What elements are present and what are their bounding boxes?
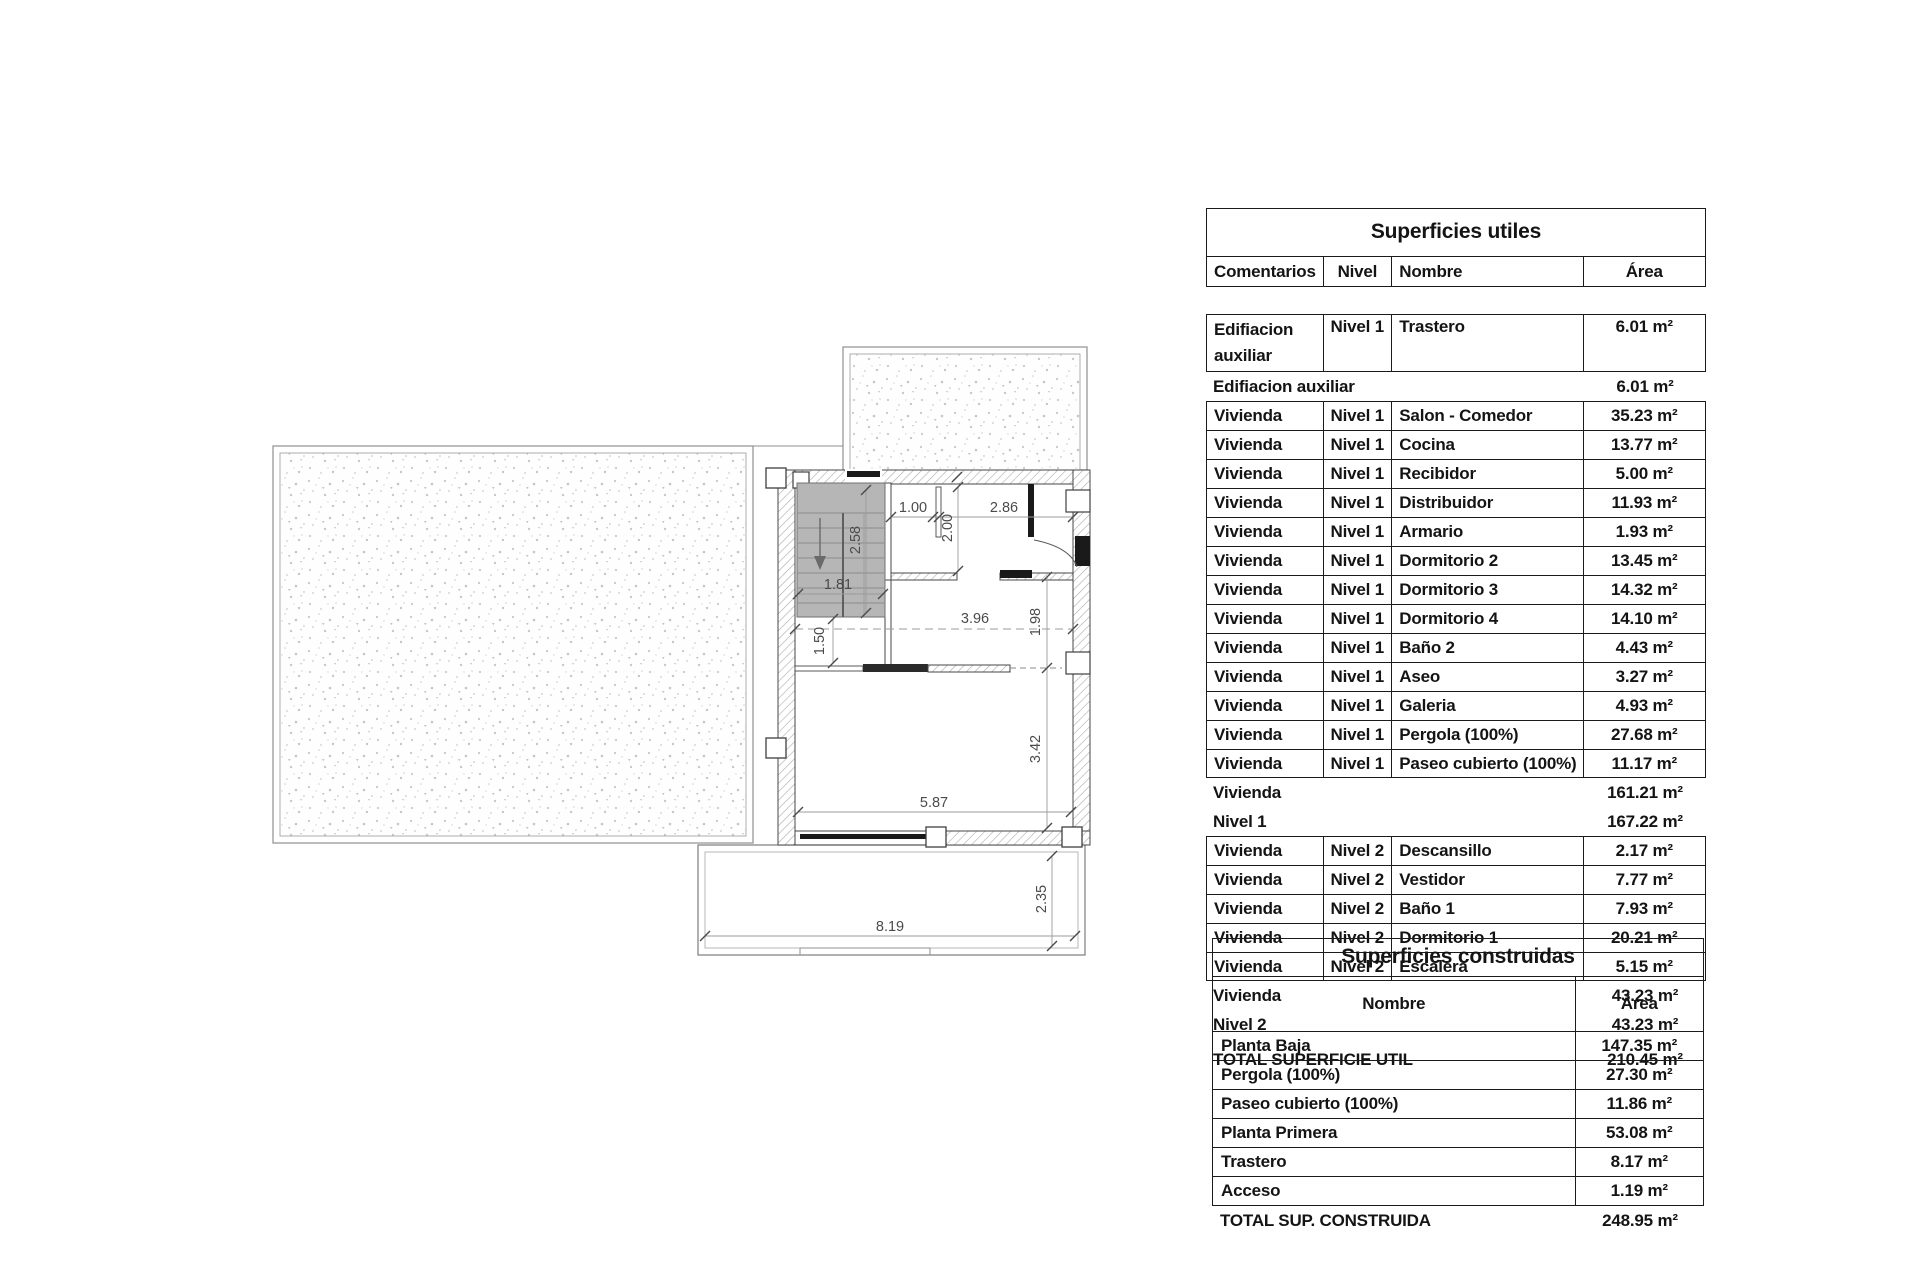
table-row: Edifiacion auxiliarNivel 1Trastero6.01 m… (1206, 314, 1706, 372)
table-row: ViviendaNivel 1Dormitorio 213.45 m² (1206, 546, 1706, 575)
table-title: Superficies utiles (1206, 208, 1706, 257)
dimension-label: 3.96 (961, 611, 989, 627)
table-row: Planta Primera53.08 m² (1212, 1119, 1704, 1148)
table-cell: 4.43 m² (1584, 634, 1705, 662)
table-cell: Dormitorio 2 (1392, 547, 1583, 575)
table-cell: Nivel 1 (1324, 315, 1393, 371)
table-cell: 5.00 m² (1584, 460, 1705, 488)
row-area: 248.95 m² (1576, 1206, 1704, 1236)
total-row: TOTAL SUP. CONSTRUIDA 248.95 m² (1212, 1206, 1704, 1236)
table-cell: Vivienda (1207, 721, 1324, 749)
table-cell: 147.35 m² (1576, 1032, 1703, 1060)
subtotal-row: Edifiacion auxiliar6.01 m² (1206, 372, 1706, 401)
table-row: ViviendaNivel 1Dormitorio 314.32 m² (1206, 575, 1706, 604)
table-cell: Vivienda (1207, 576, 1324, 604)
table-cell: Nivel 1 (1324, 576, 1393, 604)
table-cell: Baño 2 (1392, 634, 1583, 662)
door-threshold (847, 471, 880, 477)
roof-terrace-area (843, 347, 1087, 470)
table-cell: 3.27 m² (1584, 663, 1705, 691)
table-cell: Vivienda (1207, 750, 1324, 777)
table-header: Nombre Área (1212, 977, 1704, 1032)
dimension-label: 2.86 (990, 500, 1018, 516)
table-cell: Vivienda (1207, 460, 1324, 488)
table-row: Pergola (100%)27.30 m² (1212, 1061, 1704, 1090)
porch-area (698, 845, 1085, 955)
table-cell: Planta Baja (1213, 1032, 1576, 1060)
row-area: 167.22 m² (1584, 807, 1706, 836)
table-row: Trastero8.17 m² (1212, 1148, 1704, 1177)
table-cell: Nivel 1 (1324, 518, 1393, 546)
table-row: ViviendaNivel 1Armario1.93 m² (1206, 517, 1706, 546)
table-cell: Dormitorio 4 (1392, 605, 1583, 633)
table-cell: Armario (1392, 518, 1583, 546)
table-cell: Nivel 1 (1324, 663, 1393, 691)
table-cell: 11.93 m² (1584, 489, 1705, 517)
table-cell: Vivienda (1207, 605, 1324, 633)
dimension-label: 5.87 (920, 795, 948, 811)
table-cell: Recibidor (1392, 460, 1583, 488)
table-cell: Vivienda (1207, 895, 1324, 923)
table-cell: Paseo cubierto (100%) (1213, 1090, 1576, 1118)
dimension-label: 1.50 (812, 627, 828, 655)
table-row: ViviendaNivel 1Dormitorio 414.10 m² (1206, 604, 1706, 633)
table-cell: Nivel 1 (1324, 547, 1393, 575)
row-label: Edifiacion auxiliar (1213, 372, 1355, 401)
table-cell: Nivel 1 (1324, 634, 1393, 662)
subtotal-row: Nivel 1167.22 m² (1206, 807, 1706, 836)
table-cell: Dormitorio 3 (1392, 576, 1583, 604)
table-cell: Nivel 1 (1324, 460, 1393, 488)
table-cell: 14.10 m² (1584, 605, 1705, 633)
table-cell: 53.08 m² (1576, 1119, 1703, 1147)
table-row: ViviendaNivel 1Distribuidor11.93 m² (1206, 488, 1706, 517)
table-header: Comentarios Nivel Nombre Área (1206, 257, 1706, 287)
subtotal-row: Vivienda161.21 m² (1206, 778, 1706, 807)
table-cell: Vivienda (1207, 402, 1324, 430)
table-cell: Distribuidor (1392, 489, 1583, 517)
table-cell: 13.45 m² (1584, 547, 1705, 575)
table-cell: 1.19 m² (1576, 1177, 1703, 1205)
table-row: ViviendaNivel 2Descansillo2.17 m² (1206, 836, 1706, 865)
row-label: Vivienda (1213, 778, 1281, 807)
table-cell: 14.32 m² (1584, 576, 1705, 604)
column-header-nivel: Nivel (1324, 257, 1393, 286)
table-cell: 2.17 m² (1584, 837, 1705, 865)
table-cell: 13.77 m² (1584, 431, 1705, 459)
table-row: Paseo cubierto (100%)11.86 m² (1212, 1090, 1704, 1119)
table-cell: Vivienda (1207, 837, 1324, 865)
dimension-label: 2.58 (848, 526, 864, 554)
table-cell: Salon - Comedor (1392, 402, 1583, 430)
table-cell: Nivel 1 (1324, 721, 1393, 749)
table-cell: Vivienda (1207, 692, 1324, 720)
table-cell: Nivel 1 (1324, 605, 1393, 633)
table-cell: Baño 1 (1392, 895, 1583, 923)
table-cell: Nivel 2 (1324, 866, 1393, 894)
table-cell: Galeria (1392, 692, 1583, 720)
table-row: ViviendaNivel 1Paseo cubierto (100%)11.1… (1206, 749, 1706, 778)
table-cell: Vivienda (1207, 866, 1324, 894)
dimension-label: 8.19 (876, 919, 904, 935)
column-header-nombre: Nombre (1392, 257, 1583, 286)
row-area: 6.01 m² (1584, 372, 1706, 401)
table-cell: Edifiacion auxiliar (1207, 315, 1324, 371)
table-cell: Nivel 1 (1324, 431, 1393, 459)
table-cell: Planta Primera (1213, 1119, 1576, 1147)
column-header-area: Área (1584, 257, 1706, 286)
table-title: Superficies construidas (1212, 938, 1704, 977)
dimension-label: 1.00 (899, 500, 927, 516)
table-cell: Cocina (1392, 431, 1583, 459)
table-row: ViviendaNivel 2Baño 17.93 m² (1206, 894, 1706, 923)
table-cell: 6.01 m² (1584, 315, 1705, 371)
table-cell: 27.68 m² (1584, 721, 1705, 749)
table-cell: Pergola (100%) (1392, 721, 1583, 749)
table-cell: Vivienda (1207, 518, 1324, 546)
table-cell: Nivel 1 (1324, 489, 1393, 517)
dimension-label: 2.00 (940, 514, 956, 542)
table-row: ViviendaNivel 1Galeria4.93 m² (1206, 691, 1706, 720)
table-cell: Paseo cubierto (100%) (1392, 750, 1583, 777)
table-cell: 7.93 m² (1584, 895, 1705, 923)
door-swing (1034, 540, 1077, 567)
table-cell: Vestidor (1392, 866, 1583, 894)
table-row: Acceso1.19 m² (1212, 1177, 1704, 1206)
table-cell: Nivel 2 (1324, 895, 1393, 923)
table-cell: 8.17 m² (1576, 1148, 1703, 1176)
table-row: ViviendaNivel 1Aseo3.27 m² (1206, 662, 1706, 691)
table-cell: Vivienda (1207, 663, 1324, 691)
column-header-nombre: Nombre (1213, 977, 1576, 1031)
table-row: ViviendaNivel 1Recibidor5.00 m² (1206, 459, 1706, 488)
table-cell: Trastero (1213, 1148, 1576, 1176)
table-row: ViviendaNivel 1Baño 24.43 m² (1206, 633, 1706, 662)
table-cell: Acceso (1213, 1177, 1576, 1205)
table-cell: 4.93 m² (1584, 692, 1705, 720)
table-cell: Nivel 1 (1324, 750, 1393, 777)
table-row: ViviendaNivel 1Cocina13.77 m² (1206, 430, 1706, 459)
table-cell: Trastero (1392, 315, 1583, 371)
table-cell: 11.17 m² (1584, 750, 1705, 777)
table-cell: 7.77 m² (1584, 866, 1705, 894)
table-cell: 27.30 m² (1576, 1061, 1703, 1089)
table-cell: Aseo (1392, 663, 1583, 691)
column-header-area: Área (1576, 977, 1703, 1031)
table-cell: Nivel 1 (1324, 692, 1393, 720)
table-cell: 35.23 m² (1584, 402, 1705, 430)
dimension-label: 2.35 (1034, 885, 1050, 913)
table-cell: Nivel 1 (1324, 402, 1393, 430)
table-cell: 1.93 m² (1584, 518, 1705, 546)
staircase (797, 483, 885, 617)
table-row: ViviendaNivel 1Salon - Comedor35.23 m² (1206, 401, 1706, 430)
pergola-area (273, 446, 753, 843)
table-cell: Descansillo (1392, 837, 1583, 865)
row-label: TOTAL SUP. CONSTRUIDA (1220, 1206, 1431, 1236)
dimension-label: 1.81 (824, 577, 852, 593)
dimension-label: 3.42 (1028, 735, 1044, 763)
table-cell: Vivienda (1207, 634, 1324, 662)
table-cell: Pergola (100%) (1213, 1061, 1576, 1089)
table-row: ViviendaNivel 1Pergola (100%)27.68 m² (1206, 720, 1706, 749)
table-row: ViviendaNivel 2Vestidor7.77 m² (1206, 865, 1706, 894)
dimension-label: 1.98 (1028, 608, 1044, 636)
table-cell: Nivel 2 (1324, 837, 1393, 865)
row-label: Nivel 1 (1213, 807, 1266, 836)
table-row: Planta Baja147.35 m² (1212, 1032, 1704, 1061)
sliding-door (800, 834, 930, 839)
table-cell: Vivienda (1207, 547, 1324, 575)
table-cell: Vivienda (1207, 431, 1324, 459)
table-cell: Vivienda (1207, 489, 1324, 517)
table-cell: 11.86 m² (1576, 1090, 1703, 1118)
row-area: 161.21 m² (1584, 778, 1706, 807)
column-header-comentarios: Comentarios (1207, 257, 1324, 286)
